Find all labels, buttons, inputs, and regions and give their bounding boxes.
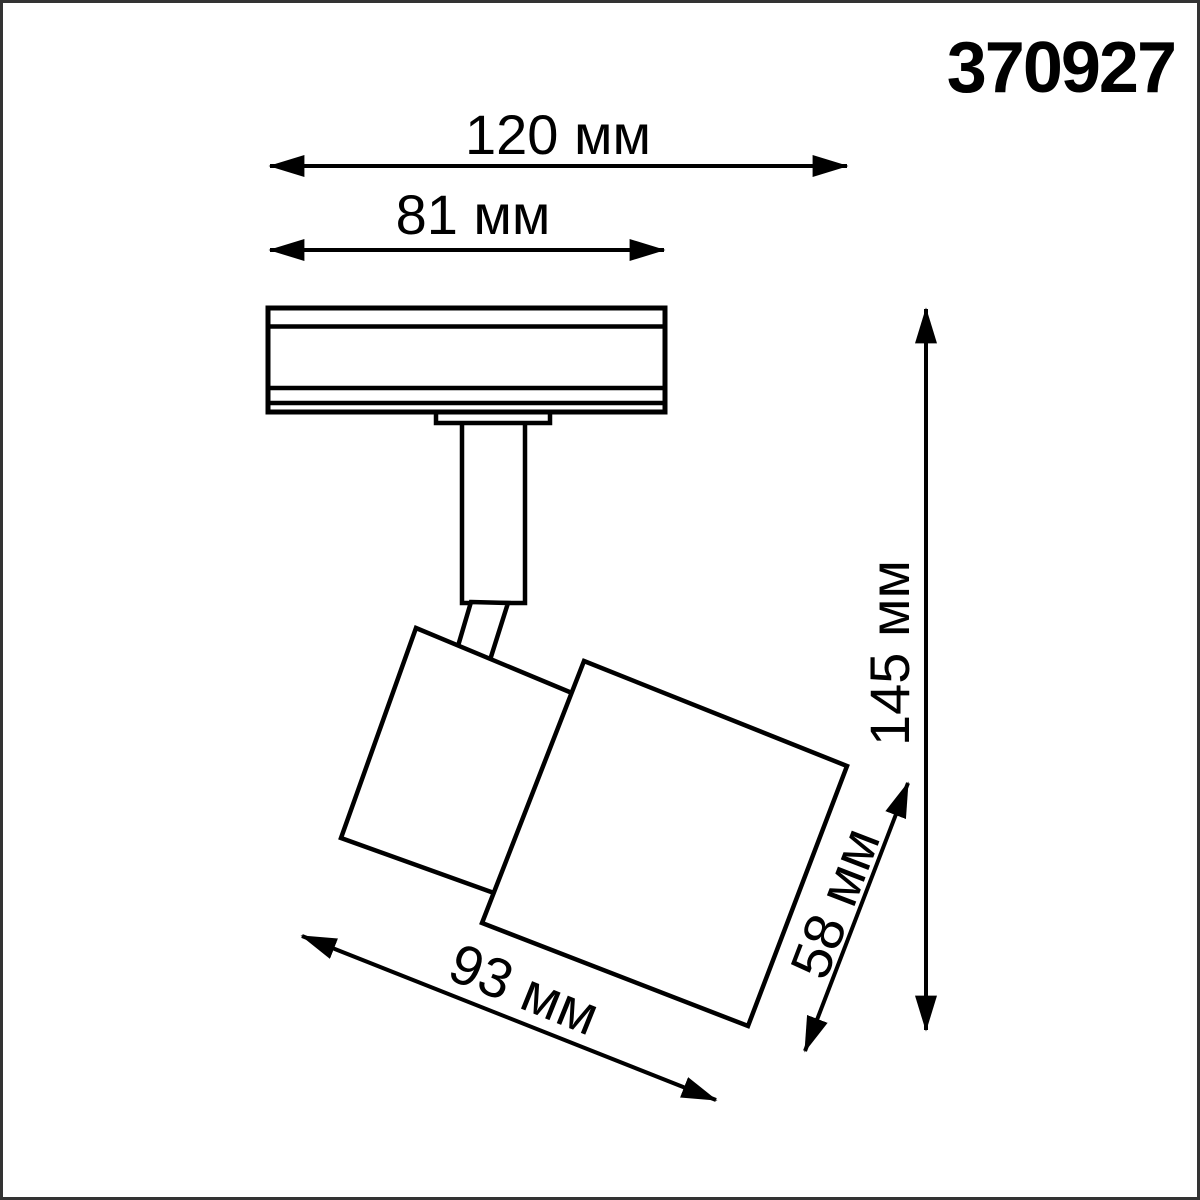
dimension-label-track-width: 120 мм xyxy=(465,103,651,166)
spotlight-fixture xyxy=(268,308,847,1026)
mounting-stem xyxy=(462,417,525,603)
drawing-page: 120 мм 81 мм 145 мм 58 мм 93 мм 370927 xyxy=(0,0,1200,1200)
product-code: 370927 xyxy=(947,28,1175,108)
dimension-label-total-height: 145 мм xyxy=(858,560,921,746)
dimension-label-adapter-width: 81 мм xyxy=(396,183,551,246)
technical-drawing: 120 мм 81 мм 145 мм 58 мм 93 мм 370927 xyxy=(3,3,1200,1200)
track-adapter-body xyxy=(268,308,665,412)
track-adapter xyxy=(268,308,665,412)
